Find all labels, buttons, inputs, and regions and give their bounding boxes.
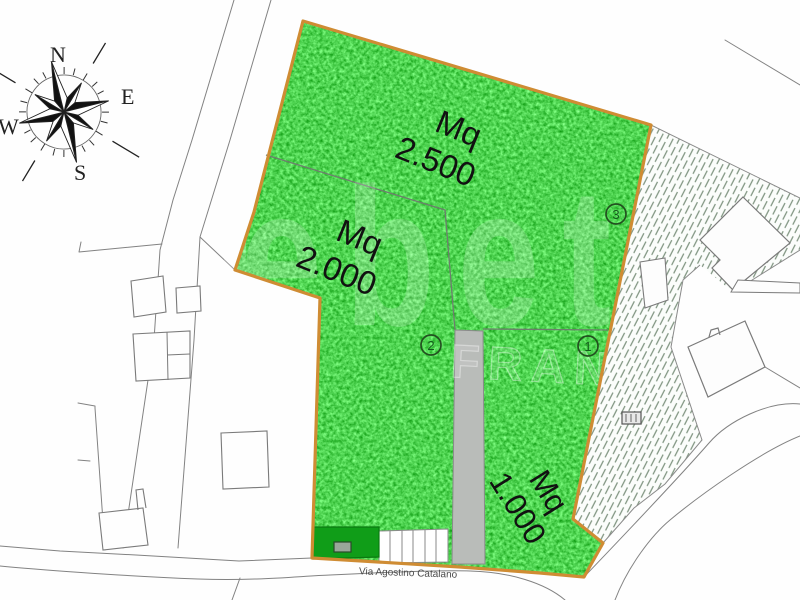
svg-text:2: 2 [427, 338, 434, 353]
svg-text:FRAN: FRAN [449, 334, 618, 396]
svg-text:E: E [121, 84, 134, 109]
svg-text:S: S [74, 160, 86, 185]
svg-text:1: 1 [584, 339, 591, 354]
svg-text:3: 3 [612, 207, 619, 222]
svg-text:W: W [0, 114, 19, 139]
svg-text:N: N [50, 42, 66, 67]
